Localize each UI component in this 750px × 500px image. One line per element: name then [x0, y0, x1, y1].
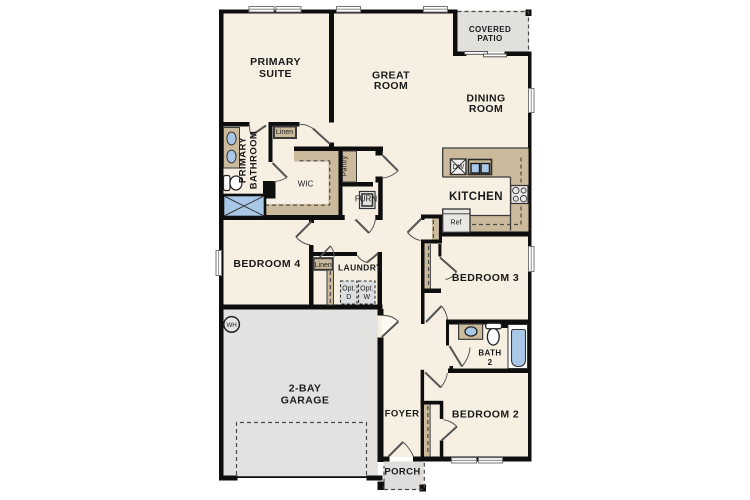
svg-text:COVERED: COVERED — [469, 25, 511, 34]
svg-text:BEDROOM 2: BEDROOM 2 — [452, 409, 519, 421]
svg-text:KITCHEN: KITCHEN — [449, 191, 503, 203]
svg-text:GARAGE: GARAGE — [281, 395, 330, 407]
svg-text:BATHROOM: BATHROOM — [249, 131, 260, 189]
svg-text:BEDROOM 3: BEDROOM 3 — [452, 272, 519, 284]
svg-text:WH: WH — [226, 322, 236, 329]
svg-text:2: 2 — [488, 358, 493, 367]
svg-text:D: D — [346, 294, 351, 301]
svg-text:W: W — [363, 294, 370, 301]
svg-text:Opt.: Opt. — [360, 286, 373, 293]
svg-text:BEDROOM 4: BEDROOM 4 — [233, 258, 300, 270]
svg-text:Linen: Linen — [276, 129, 293, 136]
svg-text:Opt.: Opt. — [342, 286, 355, 293]
svg-text:WIC: WIC — [298, 180, 314, 189]
svg-text:PRIMARY: PRIMARY — [238, 137, 249, 184]
svg-text:2-BAY: 2-BAY — [289, 383, 322, 395]
svg-text:ROOM: ROOM — [374, 80, 408, 92]
svg-text:BATH: BATH — [478, 349, 501, 358]
svg-text:LAUNDRY: LAUNDRY — [338, 263, 382, 273]
svg-text:SUITE: SUITE — [259, 68, 292, 80]
svg-text:PRIMARY: PRIMARY — [250, 56, 301, 68]
svg-text:Pantry: Pantry — [342, 155, 349, 176]
svg-text:FURN: FURN — [355, 195, 377, 204]
svg-text:PORCH: PORCH — [384, 467, 420, 478]
svg-text:DW: DW — [452, 164, 464, 171]
svg-text:FOYER: FOYER — [385, 409, 420, 420]
svg-text:PATIO: PATIO — [477, 34, 502, 43]
svg-text:ROOM: ROOM — [469, 103, 503, 115]
svg-text:Linen: Linen — [315, 262, 332, 269]
svg-text:Ref: Ref — [451, 220, 462, 227]
